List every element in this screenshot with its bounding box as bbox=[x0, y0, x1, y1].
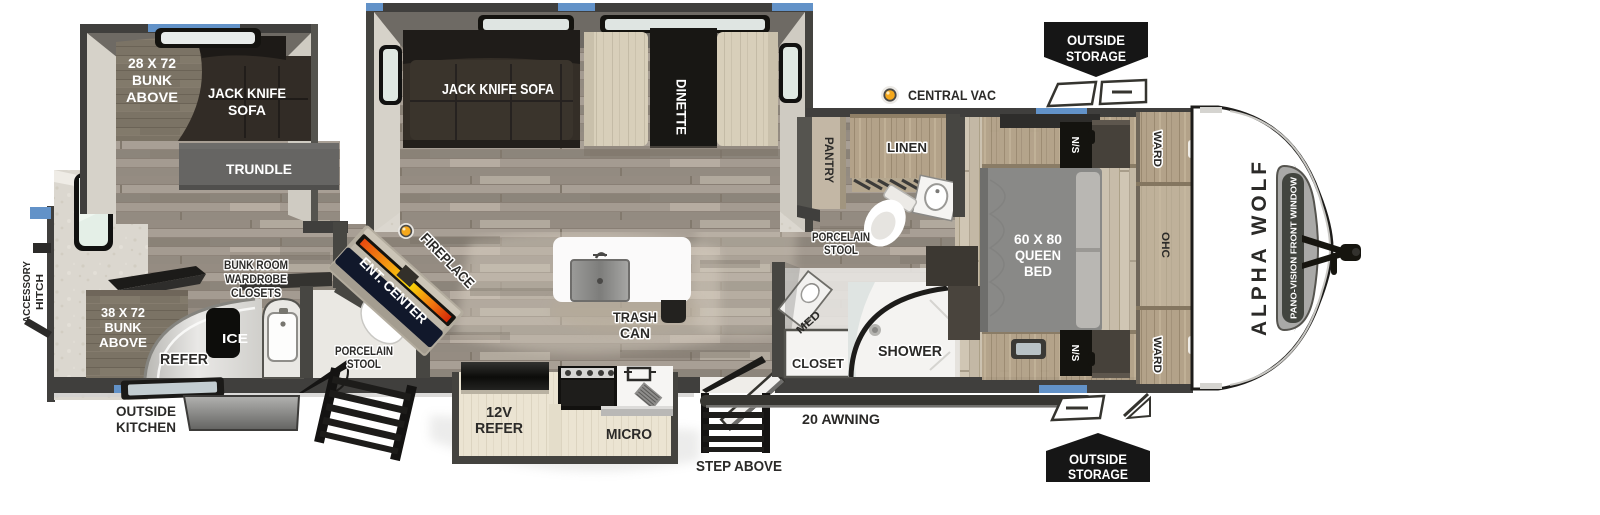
svg-text:PANO-VISION FRONT WINDOW: PANO-VISION FRONT WINDOW bbox=[1290, 177, 1299, 319]
svg-text:PORCELAIN: PORCELAIN bbox=[812, 232, 870, 244]
svg-text:STORAGE: STORAGE bbox=[1066, 49, 1126, 64]
svg-text:12V: 12V bbox=[486, 405, 512, 421]
svg-text:WARD: WARD bbox=[1151, 337, 1163, 373]
svg-text:CAN: CAN bbox=[620, 326, 650, 341]
svg-text:KITCHEN: KITCHEN bbox=[116, 419, 176, 435]
svg-text:BUNK: BUNK bbox=[105, 321, 142, 335]
svg-text:BED: BED bbox=[1024, 263, 1052, 279]
svg-text:60 X 80: 60 X 80 bbox=[1014, 231, 1062, 247]
svg-text:CLOSETS: CLOSETS bbox=[231, 286, 281, 300]
svg-text:REFER: REFER bbox=[160, 351, 208, 368]
svg-text:STORAGE: STORAGE bbox=[1068, 467, 1128, 482]
svg-text:20 AWNING: 20 AWNING bbox=[802, 411, 880, 427]
svg-text:STEP ABOVE: STEP ABOVE bbox=[696, 459, 782, 475]
svg-text:SHOWER: SHOWER bbox=[878, 343, 942, 360]
svg-text:QUEEN: QUEEN bbox=[1015, 247, 1061, 263]
svg-text:ICE: ICE bbox=[222, 331, 248, 346]
svg-text:WARDROBE: WARDROBE bbox=[225, 272, 287, 286]
svg-text:JACK KNIFE SOFA: JACK KNIFE SOFA bbox=[442, 81, 554, 98]
svg-text:JACK KNIFE: JACK KNIFE bbox=[208, 85, 286, 101]
svg-text:TRUNDLE: TRUNDLE bbox=[226, 161, 292, 177]
svg-text:CLOSET: CLOSET bbox=[792, 356, 844, 371]
svg-text:PANTRY: PANTRY bbox=[822, 137, 834, 183]
svg-text:38 X 72: 38 X 72 bbox=[101, 306, 145, 320]
svg-text:SOFA: SOFA bbox=[228, 102, 266, 118]
svg-text:STOOL: STOOL bbox=[824, 245, 858, 257]
svg-text:STOOL: STOOL bbox=[347, 359, 381, 371]
svg-text:ALPHA WOLF: ALPHA WOLF bbox=[1248, 158, 1271, 336]
svg-text:HITCH: HITCH bbox=[34, 274, 46, 310]
svg-text:ABOVE: ABOVE bbox=[99, 336, 147, 350]
svg-text:ABOVE: ABOVE bbox=[126, 90, 178, 105]
svg-text:N/S: N/S bbox=[1069, 137, 1080, 154]
svg-text:ACCESSORY: ACCESSORY bbox=[21, 261, 33, 323]
svg-text:REFER: REFER bbox=[475, 421, 524, 437]
svg-text:PORCELAIN: PORCELAIN bbox=[335, 346, 393, 358]
svg-text:DINETTE: DINETTE bbox=[673, 79, 689, 135]
svg-text:LINEN: LINEN bbox=[887, 140, 927, 155]
svg-text:OHC: OHC bbox=[1159, 232, 1171, 258]
svg-text:WARD: WARD bbox=[1151, 131, 1163, 167]
svg-text:OUTSIDE: OUTSIDE bbox=[116, 403, 176, 419]
svg-text:BUNK ROOM: BUNK ROOM bbox=[224, 258, 288, 272]
svg-text:TRASH: TRASH bbox=[613, 310, 657, 325]
svg-text:OUTSIDE: OUTSIDE bbox=[1067, 33, 1125, 48]
svg-text:28 X 72: 28 X 72 bbox=[128, 56, 176, 71]
svg-text:N/S: N/S bbox=[1069, 345, 1080, 362]
svg-text:CENTRAL VAC: CENTRAL VAC bbox=[908, 88, 996, 103]
svg-text:MICRO: MICRO bbox=[606, 427, 652, 443]
svg-text:OUTSIDE: OUTSIDE bbox=[1069, 452, 1127, 467]
svg-text:BUNK: BUNK bbox=[132, 73, 172, 88]
